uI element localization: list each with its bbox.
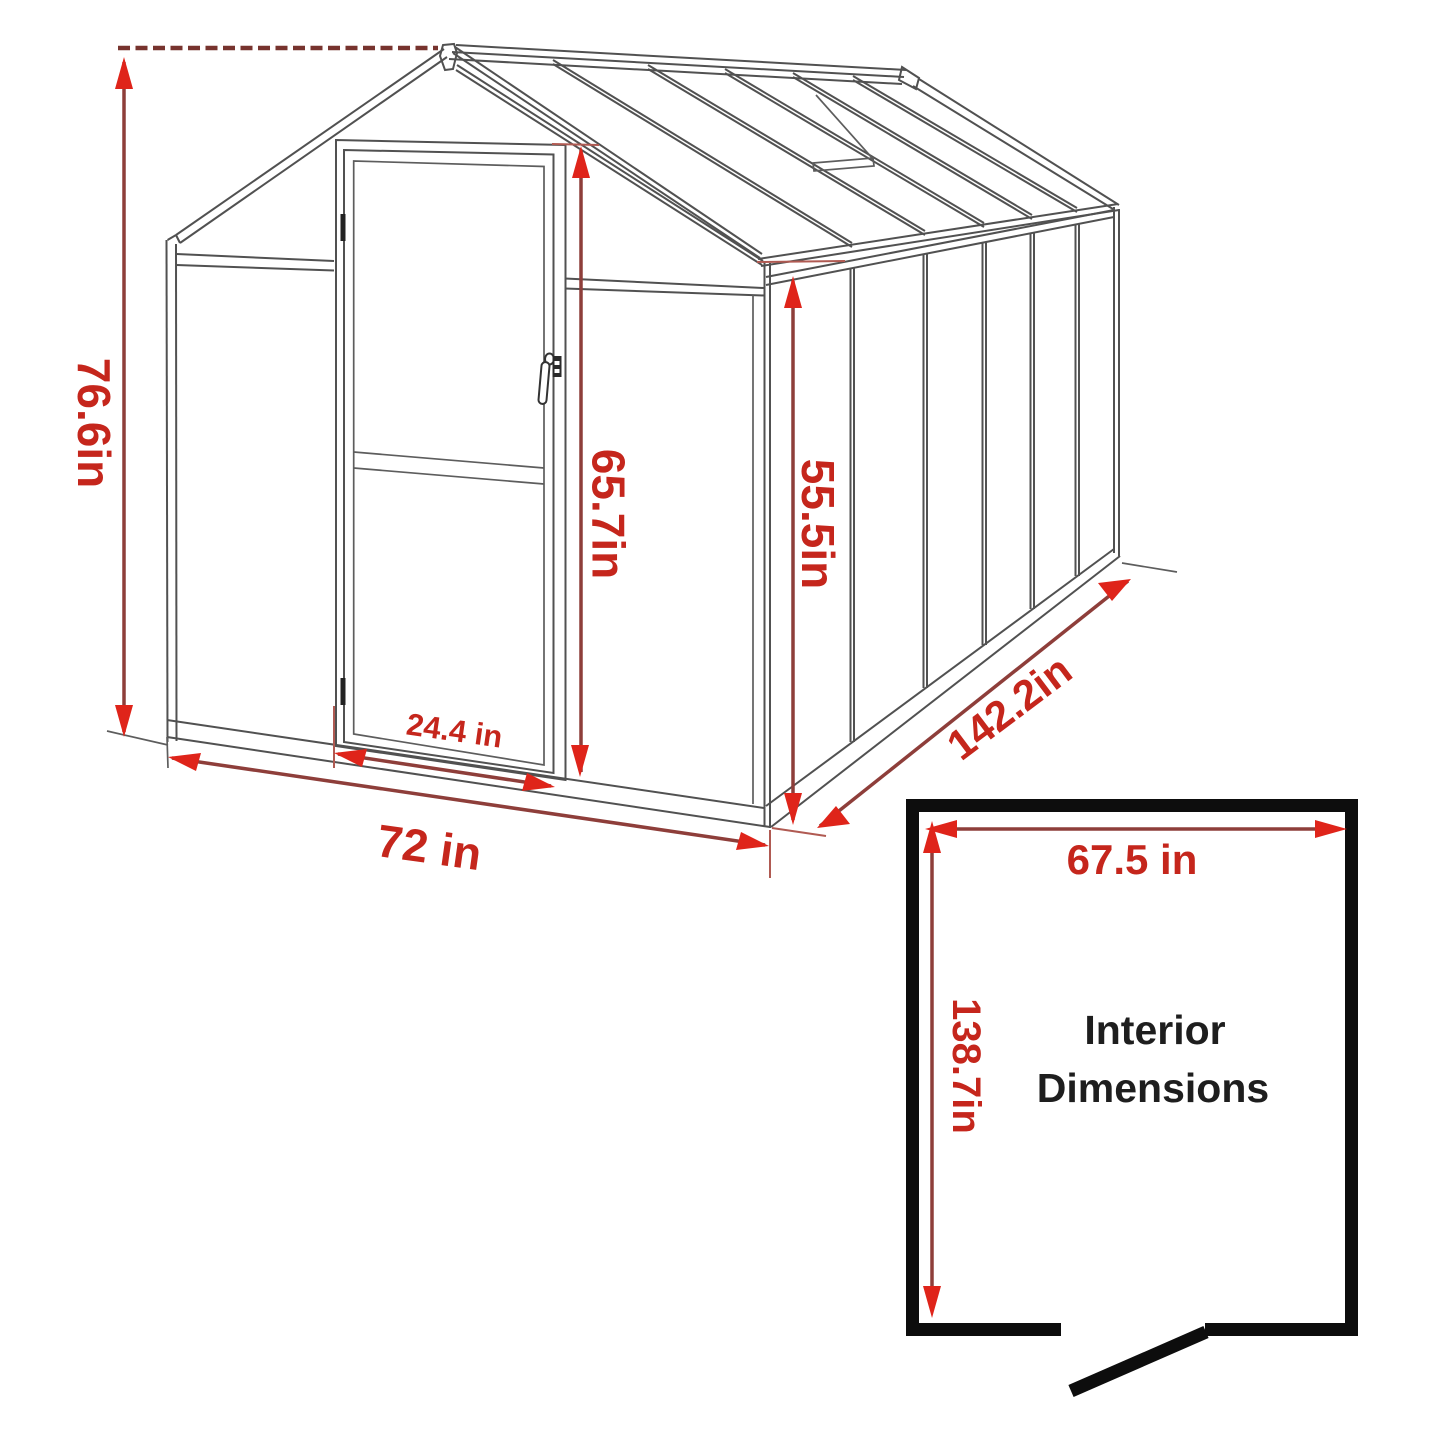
svg-text:65.7in: 65.7in — [583, 449, 635, 579]
svg-text:24.4 in: 24.4 in — [404, 707, 504, 755]
svg-text:Dimensions: Dimensions — [1037, 1065, 1269, 1111]
svg-text:Interior: Interior — [1084, 1007, 1225, 1053]
svg-text:67.5 in: 67.5 in — [1067, 836, 1198, 883]
svg-text:138.7in: 138.7in — [944, 998, 988, 1134]
svg-text:55.5in: 55.5in — [792, 459, 844, 589]
svg-text:76.6in: 76.6in — [68, 358, 120, 488]
svg-text:72 in: 72 in — [374, 814, 485, 880]
